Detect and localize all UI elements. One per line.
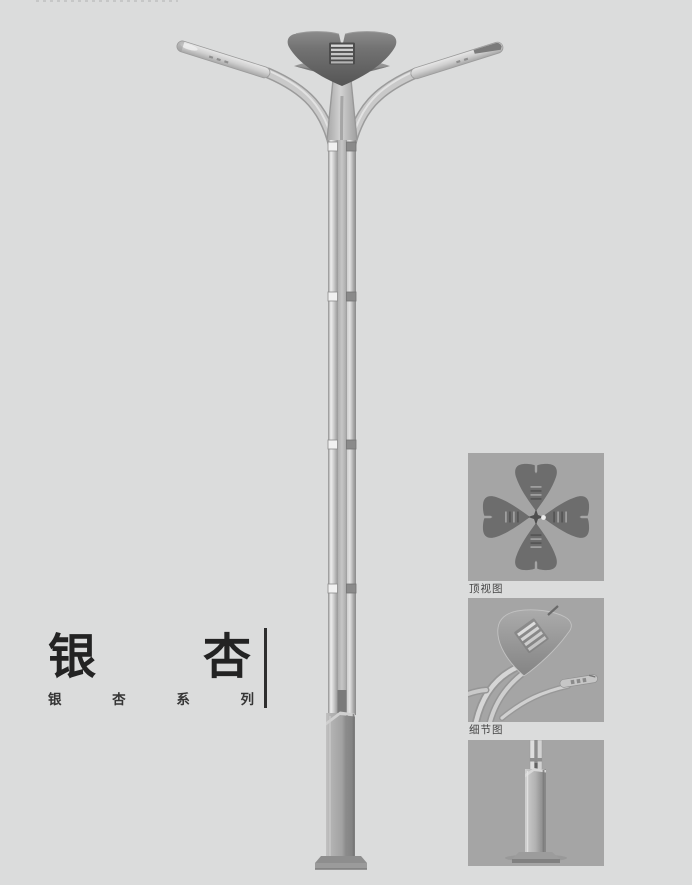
detail-view-caption: 细节图 [469,723,604,738]
top-view-image [468,453,604,581]
lamp-trunk [327,80,357,140]
detail-view-image [468,598,604,722]
top-view-caption: 顶视图 [469,582,604,597]
base-view-image [468,740,604,866]
title-divider [264,628,267,708]
product-series: 银杏系列 [48,691,254,708]
gallery-panel-top-view [468,453,604,581]
gallery-panel-detail-view [468,598,604,722]
product-title: 银杏 [48,630,251,686]
base-column [326,712,355,861]
crown-louvers [329,43,355,65]
ginkgo-crown [288,32,397,86]
catalog-page: 银杏 银杏系列 顶视图 [0,0,692,885]
base-plate [315,856,367,869]
left-lamp-head [176,40,272,80]
right-lamp-head [409,41,504,80]
gallery-panel-base-view [468,740,604,866]
pole [328,140,356,715]
